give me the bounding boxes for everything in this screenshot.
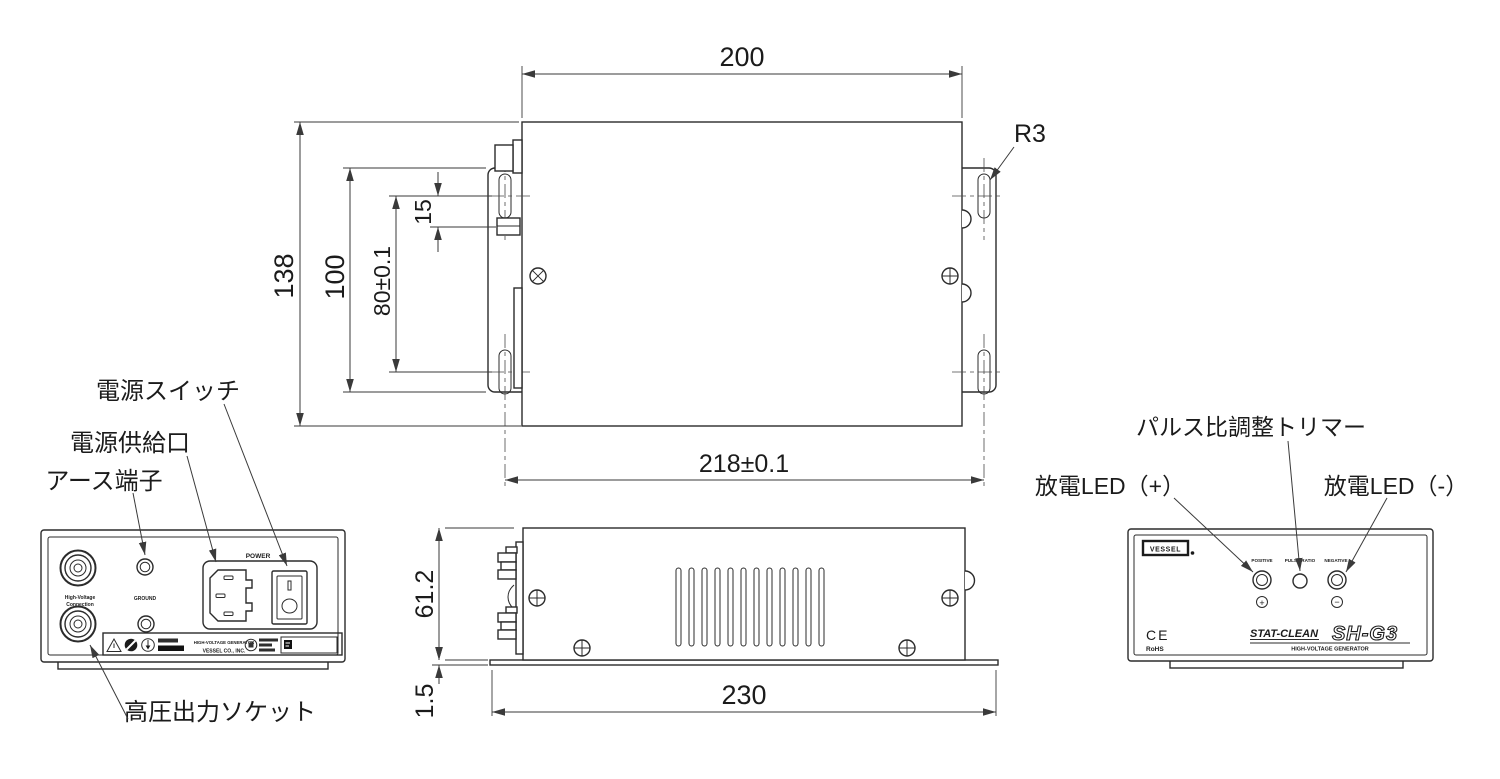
callout-power-inlet: 電源供給口 [70, 430, 190, 457]
callout-ground-terminal: アース端子 [45, 468, 162, 495]
dim-overall-height: 138 [269, 253, 299, 298]
svg-text:VESSEL: VESSEL [1150, 547, 1181, 554]
cover-screw [942, 268, 958, 284]
side-screw [574, 640, 590, 656]
dim-base-length: 230 [721, 680, 766, 710]
ce-mark: CE [1146, 627, 1169, 643]
enclosure-body-side [523, 528, 965, 660]
drawing-sheet: 200 138 100 80±0.1 15 218±0.1 R3 [0, 0, 1500, 779]
rear-panel-view: High-Voltage Connection GROUND POWER [41, 378, 345, 726]
hv-connector-side [498, 607, 517, 639]
technical-drawing: 200 138 100 80±0.1 15 218±0.1 R3 [0, 0, 1500, 779]
top-view: 200 138 100 80±0.1 15 218±0.1 R3 [269, 42, 1046, 486]
model-text-bar [158, 646, 184, 652]
led-bump-side [965, 571, 975, 590]
dim-slot-offset: 15 [410, 199, 436, 225]
callout-hv-socket: 高圧出力ソケット [124, 699, 316, 726]
dim-side-height: 61.2 [411, 570, 439, 619]
spec-text-bar [259, 649, 275, 652]
pulse-ratio-label: PULSE RATIO [1285, 558, 1316, 563]
dim-plate-thickness: 1.5 [411, 684, 439, 719]
hv-connector-top [495, 145, 513, 171]
dim-mount-pitch: 218±0.1 [699, 450, 789, 478]
power-label: POWER [246, 553, 271, 560]
hv-connector-side [498, 547, 517, 579]
rohs-label: RoHS [1146, 646, 1164, 653]
callout-trimmer: パルス比調整トリマー [1136, 414, 1366, 440]
positive-label: POSITIVE [1251, 558, 1272, 563]
side-view: 61.2 1.5 230 [411, 528, 998, 718]
svg-text:STAT-CLEAN: STAT-CLEAN [1250, 628, 1319, 640]
svg-text:SH-G3: SH-G3 [1332, 623, 1398, 645]
dim-corner-radius: R3 [1014, 120, 1046, 148]
dim-flange-height: 100 [320, 254, 350, 299]
rating-company: VESSEL CO., INC. [203, 649, 246, 655]
callout-power-switch: 電源スイッチ [96, 378, 240, 405]
panel-seam [514, 288, 522, 388]
enclosure-body-top [522, 122, 962, 426]
svg-text:−: − [1334, 597, 1339, 607]
connector-cable [508, 585, 514, 609]
spec-text-bar [259, 644, 272, 647]
callout-led-negative: 放電LED（-） [1324, 473, 1468, 499]
vessel-logo: VESSEL [1143, 541, 1194, 555]
dim-slot-pitch: 80±0.1 [369, 246, 395, 316]
model-text-bar [158, 639, 178, 643]
callout-led-positive: 放電LED（+） [1035, 473, 1185, 499]
spec-text-bar [259, 639, 278, 642]
side-screw [942, 590, 958, 606]
side-screw [899, 640, 915, 656]
rear-panel-edge [516, 542, 523, 654]
hv-connection-label: High-Voltage [65, 595, 96, 601]
side-screw [529, 590, 545, 606]
logo-subtitle: HIGH-VOLTAGE GENERATOR [1291, 647, 1369, 653]
front-panel-view: VESSEL POSITIVE PULSE RATIO NEGATIVE + −… [1035, 414, 1468, 668]
svg-text:+: + [1259, 598, 1264, 608]
hv-connector-top [513, 140, 522, 173]
dim-top-width: 200 [719, 42, 764, 72]
negative-label: NEGATIVE [1324, 558, 1347, 563]
base-plate [490, 660, 998, 665]
ground-label: GROUND [134, 596, 157, 602]
